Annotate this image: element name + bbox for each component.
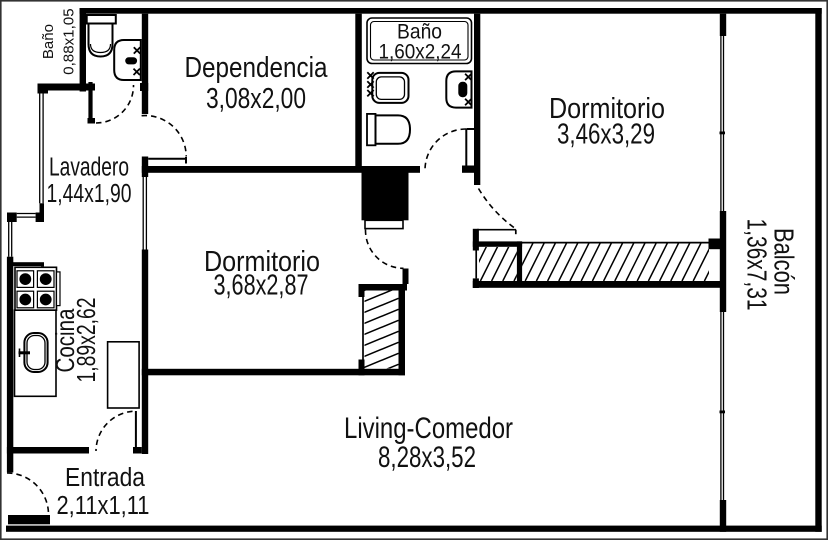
svg-text:3,68x2,87: 3,68x2,87 — [214, 270, 309, 302]
svg-text:1,44x1,90: 1,44x1,90 — [47, 180, 132, 208]
svg-text:3,08x2,00: 3,08x2,00 — [206, 83, 306, 115]
svg-text:2,11x1,11: 2,11x1,11 — [57, 492, 150, 520]
svg-text:1,36x7,31: 1,36x7,31 — [742, 219, 773, 311]
svg-text:Baño: Baño — [40, 24, 57, 59]
svg-text:1,89x2,62: 1,89x2,62 — [71, 298, 101, 383]
svg-text:Entrada: Entrada — [65, 464, 146, 492]
svg-text:Dependencia: Dependencia — [185, 52, 329, 84]
svg-text:3,46x3,29: 3,46x3,29 — [557, 119, 655, 151]
svg-text:Lavadero: Lavadero — [49, 154, 129, 182]
svg-text:8,28x3,52: 8,28x3,52 — [378, 441, 476, 474]
svg-text:0,88x1,05: 0,88x1,05 — [60, 8, 77, 75]
svg-text:1,60x2,24: 1,60x2,24 — [379, 40, 462, 64]
